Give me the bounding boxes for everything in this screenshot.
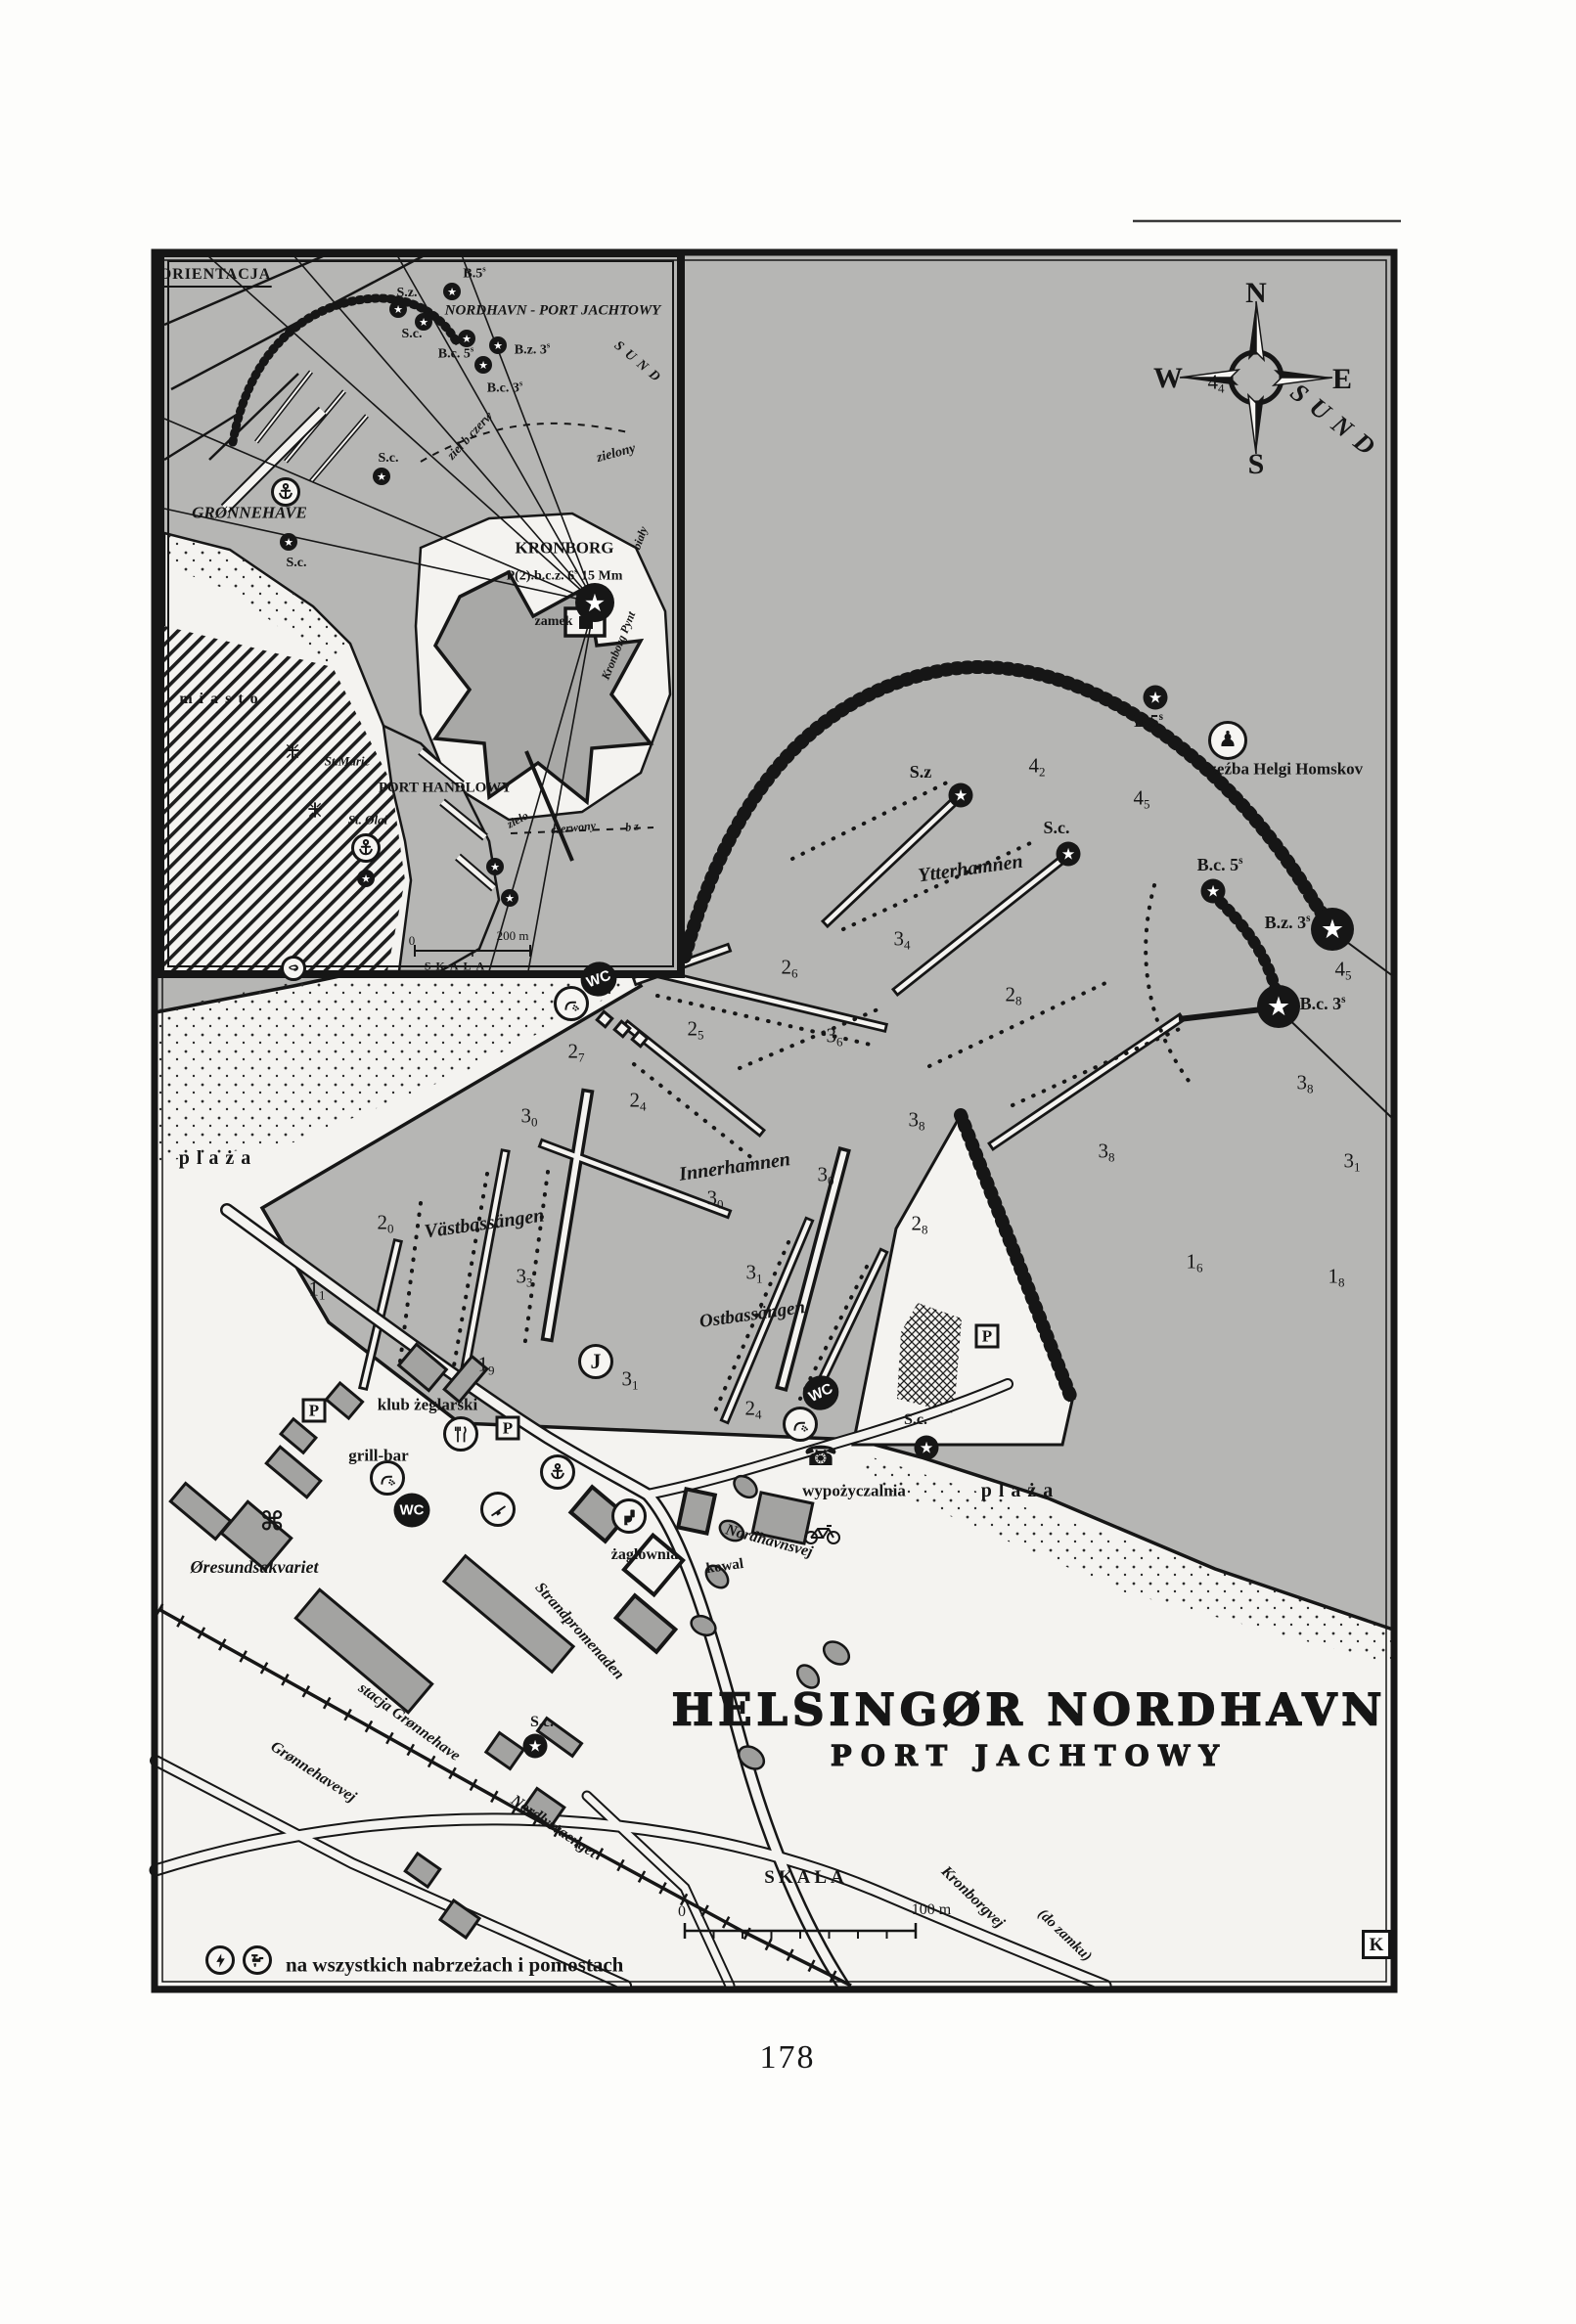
inset-port-handlowy: PORT HANDLOWY (379, 782, 512, 796)
map-bike-rental-icon (803, 1523, 842, 1544)
depth-sounding: 24 (630, 1091, 647, 1113)
depth-sounding: 38 (1099, 1141, 1115, 1164)
inset-light-bz3: B.z. 3s (515, 341, 550, 358)
map-compass-n: N (1245, 279, 1267, 308)
map-parking-west-icon: P (302, 1399, 327, 1423)
inset-scale-label: SKALA (425, 960, 489, 974)
map-light-sc-spit: S.c. (904, 1412, 927, 1428)
depth-sounding: 38 (909, 1110, 925, 1133)
map-harbour-anchor-icon (540, 1454, 575, 1490)
inset-kronborg-light: P(2).b.c.z. 6s 15 Mm (507, 567, 623, 584)
map-parking-club-icon: P (496, 1416, 520, 1441)
map-shower-entrance-icon (554, 986, 589, 1021)
map-beacon-sc-spit: ★ (915, 1436, 939, 1460)
inset-post-office-icon (281, 956, 306, 981)
depth-sounding: 34 (894, 929, 911, 952)
map-statue-helgi-homskov-icon: ♟ (1208, 721, 1247, 760)
depth-sounding: 31 (746, 1263, 763, 1285)
map-beacon-bc3: ★ (1257, 985, 1300, 1028)
depth-sounding: 31 (1344, 1151, 1361, 1174)
depth-sounding: 36 (827, 1026, 843, 1049)
scale-label: SKALA (764, 1867, 847, 1889)
map-aquarium-label: Øresundsakvariet (190, 1558, 318, 1576)
depth-sounding: 33 (517, 1267, 533, 1289)
map-chart-corner-mark: K (1362, 1930, 1391, 1959)
depth-sounding: 45 (1335, 960, 1352, 982)
map-beacon-sc-station: ★ (523, 1734, 548, 1759)
inset-church-st-olai: St. Olai (348, 814, 387, 827)
depth-sounding: 25 (688, 1019, 704, 1042)
map-rental: wypożyczalnia (802, 1483, 906, 1499)
depth-sounding: 30 (521, 1106, 538, 1129)
map-parking-spit-icon: P (975, 1324, 1000, 1349)
inset-beacon-sz: ★ (389, 300, 407, 318)
map-shower-east-icon (783, 1407, 818, 1442)
inset-beacon-b5: ★ (443, 283, 461, 300)
facilities-note: na wszystkich nabrzeżach i pomostach (286, 1953, 623, 1978)
map-compass-e: E (1332, 365, 1352, 394)
scale-end: 100 m (912, 1901, 951, 1919)
map-beach-west: plaża (179, 1148, 258, 1168)
depth-sounding: 26 (782, 958, 798, 980)
map-phone-icon: ☎ (804, 1443, 838, 1470)
map-subtitle: PORT JACHTOWY (831, 1739, 1228, 1772)
depth-sounding: 42 (1029, 756, 1046, 779)
depth-sounding: 30 (707, 1188, 724, 1211)
inset-church-st-marie-icon (284, 742, 302, 761)
map-beacon-bc5: ★ (1201, 879, 1226, 904)
page-number: 178 (760, 2039, 816, 2077)
map-beacon-sc: ★ (1057, 842, 1081, 867)
inset-light-sz: S.z. (397, 287, 418, 300)
depth-sounding: 31 (622, 1369, 639, 1392)
inset-light-sc-b: S.c. (379, 452, 399, 466)
inset-gronnehave: GRØNNEHAVE (192, 505, 307, 521)
inset-beacon-sc-b: ★ (373, 468, 390, 485)
inset-header: NORDHAVN - PORT JACHTOWY (445, 303, 661, 320)
inset-light-b5: B.5s (463, 265, 485, 282)
inset-anchorage-gronnehave-icon (271, 477, 300, 507)
inset-beacon-bc5-b: ★ (474, 356, 492, 374)
map-sail-loft: żaglownia (611, 1547, 678, 1563)
inset-beacon-port-a: ★ (357, 870, 375, 887)
depth-sounding: 24 (745, 1399, 762, 1421)
inset-beacon-bz3: ★ (489, 336, 507, 354)
depth-sounding: 30 (818, 1165, 834, 1187)
map-compass-w: W (1153, 364, 1183, 393)
map-toilet-icon (611, 1498, 647, 1534)
map-slipway-icon (480, 1492, 516, 1527)
depth-sounding: 18 (1328, 1267, 1345, 1289)
depth-sounding: 11 (309, 1279, 326, 1302)
map-drinking-water-icon (243, 1945, 272, 1975)
map-light-sc: S.c. (1044, 819, 1070, 836)
inset-scale-start: 0 (409, 933, 416, 949)
map-aquarium-poi-icon: ⌘ (259, 1509, 284, 1536)
map-light-bz3: B.z. 3s (1265, 914, 1311, 931)
map-sculpture-label: rzeźba Helgi Homskov (1202, 761, 1363, 778)
depth-sounding: 27 (568, 1042, 585, 1064)
scale-start: 0 (678, 1903, 686, 1921)
inset-beacon-sc-a: ★ (415, 313, 432, 331)
inset-anchorage-port-icon (351, 833, 381, 863)
inset-beacon-bc5-a: ★ (458, 330, 475, 347)
map-shower-club-icon (370, 1460, 405, 1496)
map-light-sz: S.z (910, 763, 932, 781)
map-wc-club-icon: WC (394, 1494, 430, 1528)
inset-light-bc3: B.c. 3s (487, 380, 522, 396)
depth-sounding: 28 (1006, 985, 1022, 1007)
map-light-bc3: B.c. 3s (1300, 995, 1346, 1012)
map-light-sc-station: S.c. (530, 1715, 554, 1730)
map-compass-s: S (1248, 450, 1265, 479)
map-light-b5: B.5s (1134, 712, 1163, 730)
map-restaurant-icon (443, 1416, 478, 1452)
inset-beacon-port-c: ★ (501, 889, 518, 907)
depth-sounding: 44 (1208, 373, 1225, 395)
map-title: HELSINGØR NORDHAVN (672, 1684, 1387, 1736)
depth-sounding: 28 (912, 1214, 928, 1236)
map-beach-southeast: plaża (981, 1481, 1060, 1500)
map-electricity-icon (205, 1945, 235, 1975)
map-sailing-club: klub żeglarski (378, 1397, 478, 1413)
inset-beacon-sc-c: ★ (280, 533, 297, 551)
scanned-chart-page: ORIENTACJA NORDHAVN - PORT JACHTOWY HELS… (0, 0, 1576, 2324)
inset-church-st-marie: St.Marie (325, 755, 371, 768)
map-beacon-bz3: ★ (1311, 908, 1354, 951)
map-light-bc5: B.c. 5s (1197, 856, 1243, 873)
inset-light-bc5: B.c. 5s (438, 345, 473, 362)
inset-church-st-olai-icon (306, 801, 325, 820)
map-beacon-b5: ★ (1144, 686, 1168, 710)
depth-sounding: 38 (1297, 1073, 1314, 1095)
map-crane-icon: J (578, 1344, 613, 1379)
inset-kronborg-lighthouse: ★ (575, 583, 614, 622)
depth-sounding: 45 (1134, 788, 1150, 811)
depth-sounding: 19 (478, 1355, 495, 1377)
inset-beacon-port-b: ★ (486, 858, 504, 875)
depth-sounding: 20 (378, 1213, 394, 1235)
inset-light-sc-c: S.c. (287, 557, 307, 570)
inset-scale-end: 200 m (497, 928, 529, 944)
inset-kronborg: KRONBORG (515, 540, 613, 557)
inset-city: miasto (179, 692, 264, 707)
inset-sector-bz: b z (625, 820, 640, 832)
map-beacon-sz: ★ (949, 783, 973, 808)
inset-castle: zamek (535, 615, 573, 629)
inset-title: ORIENTACJA (159, 266, 272, 288)
depth-sounding: 16 (1187, 1252, 1203, 1274)
